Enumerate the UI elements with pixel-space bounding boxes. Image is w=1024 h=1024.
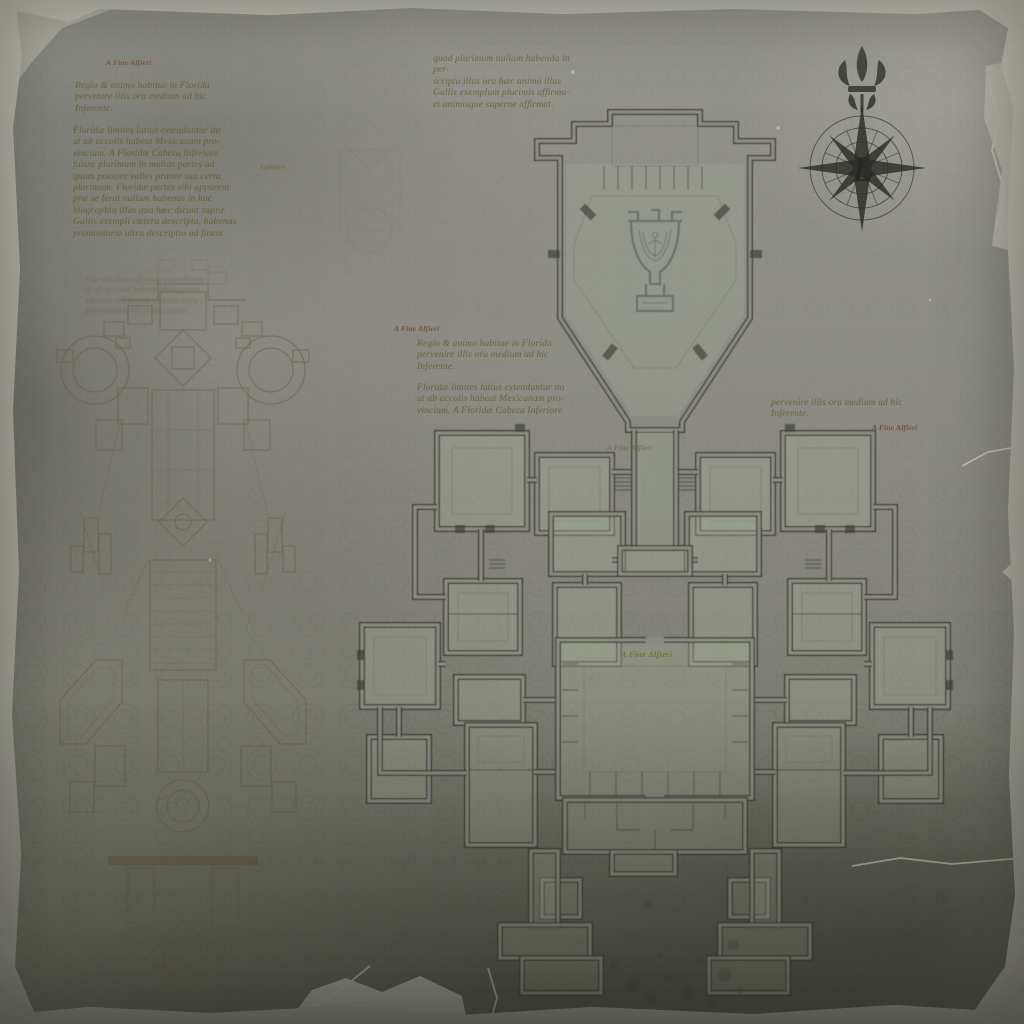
caption-left-margin: Apbatye <box>259 162 285 171</box>
latin-text-intro-top-left: Regio & animo habitue in Florida perveni… <box>75 81 225 115</box>
worn-corner-top-left <box>9 6 120 92</box>
fleur-de-lis-icon <box>838 46 885 112</box>
caption-center: A Fine Alfieri <box>621 649 672 659</box>
parchment-map: L A Fine Alfieri Regio & animo habitue i… <box>9 6 1015 1017</box>
caption-top-left: A Fine Alfieri <box>106 58 151 67</box>
chipped-edge-bottom <box>292 976 466 1016</box>
latin-text-sepia: Floridæ limites latius extenduntur ut ab… <box>85 274 230 316</box>
central-hall <box>558 637 752 801</box>
compass-rose: L <box>797 46 927 233</box>
latin-text-mid-paragraph: Floridæ limites latius extenduntur ita u… <box>417 383 579 417</box>
latin-text-mid-intro: Regio & animo habitue in Florida perveni… <box>417 339 569 373</box>
lower-chambers <box>565 800 745 874</box>
caption-corridor: A Fine Alfieri <box>607 443 652 452</box>
latin-text-paragraph-top-left: Floridæ limites latius extenduntur ita u… <box>73 126 245 240</box>
torn-edge-right <box>984 60 1016 252</box>
caption-mid-left: A Fine Alfieri <box>394 324 439 333</box>
latin-text-right-fragment: pervenire illis ora medium ad hic Infere… <box>771 398 911 421</box>
compass-center-letter: L <box>852 149 873 189</box>
ink-floorplan <box>357 112 953 1009</box>
notch-right-edge <box>1002 560 1016 584</box>
game-map-screen: L A Fine Alfieri Regio & animo habitue i… <box>0 0 1024 1024</box>
caption-right: A Fine Alfieri <box>872 423 917 432</box>
latin-text-top-middle: quod plurimum nullam habenda in per- scr… <box>433 54 573 111</box>
